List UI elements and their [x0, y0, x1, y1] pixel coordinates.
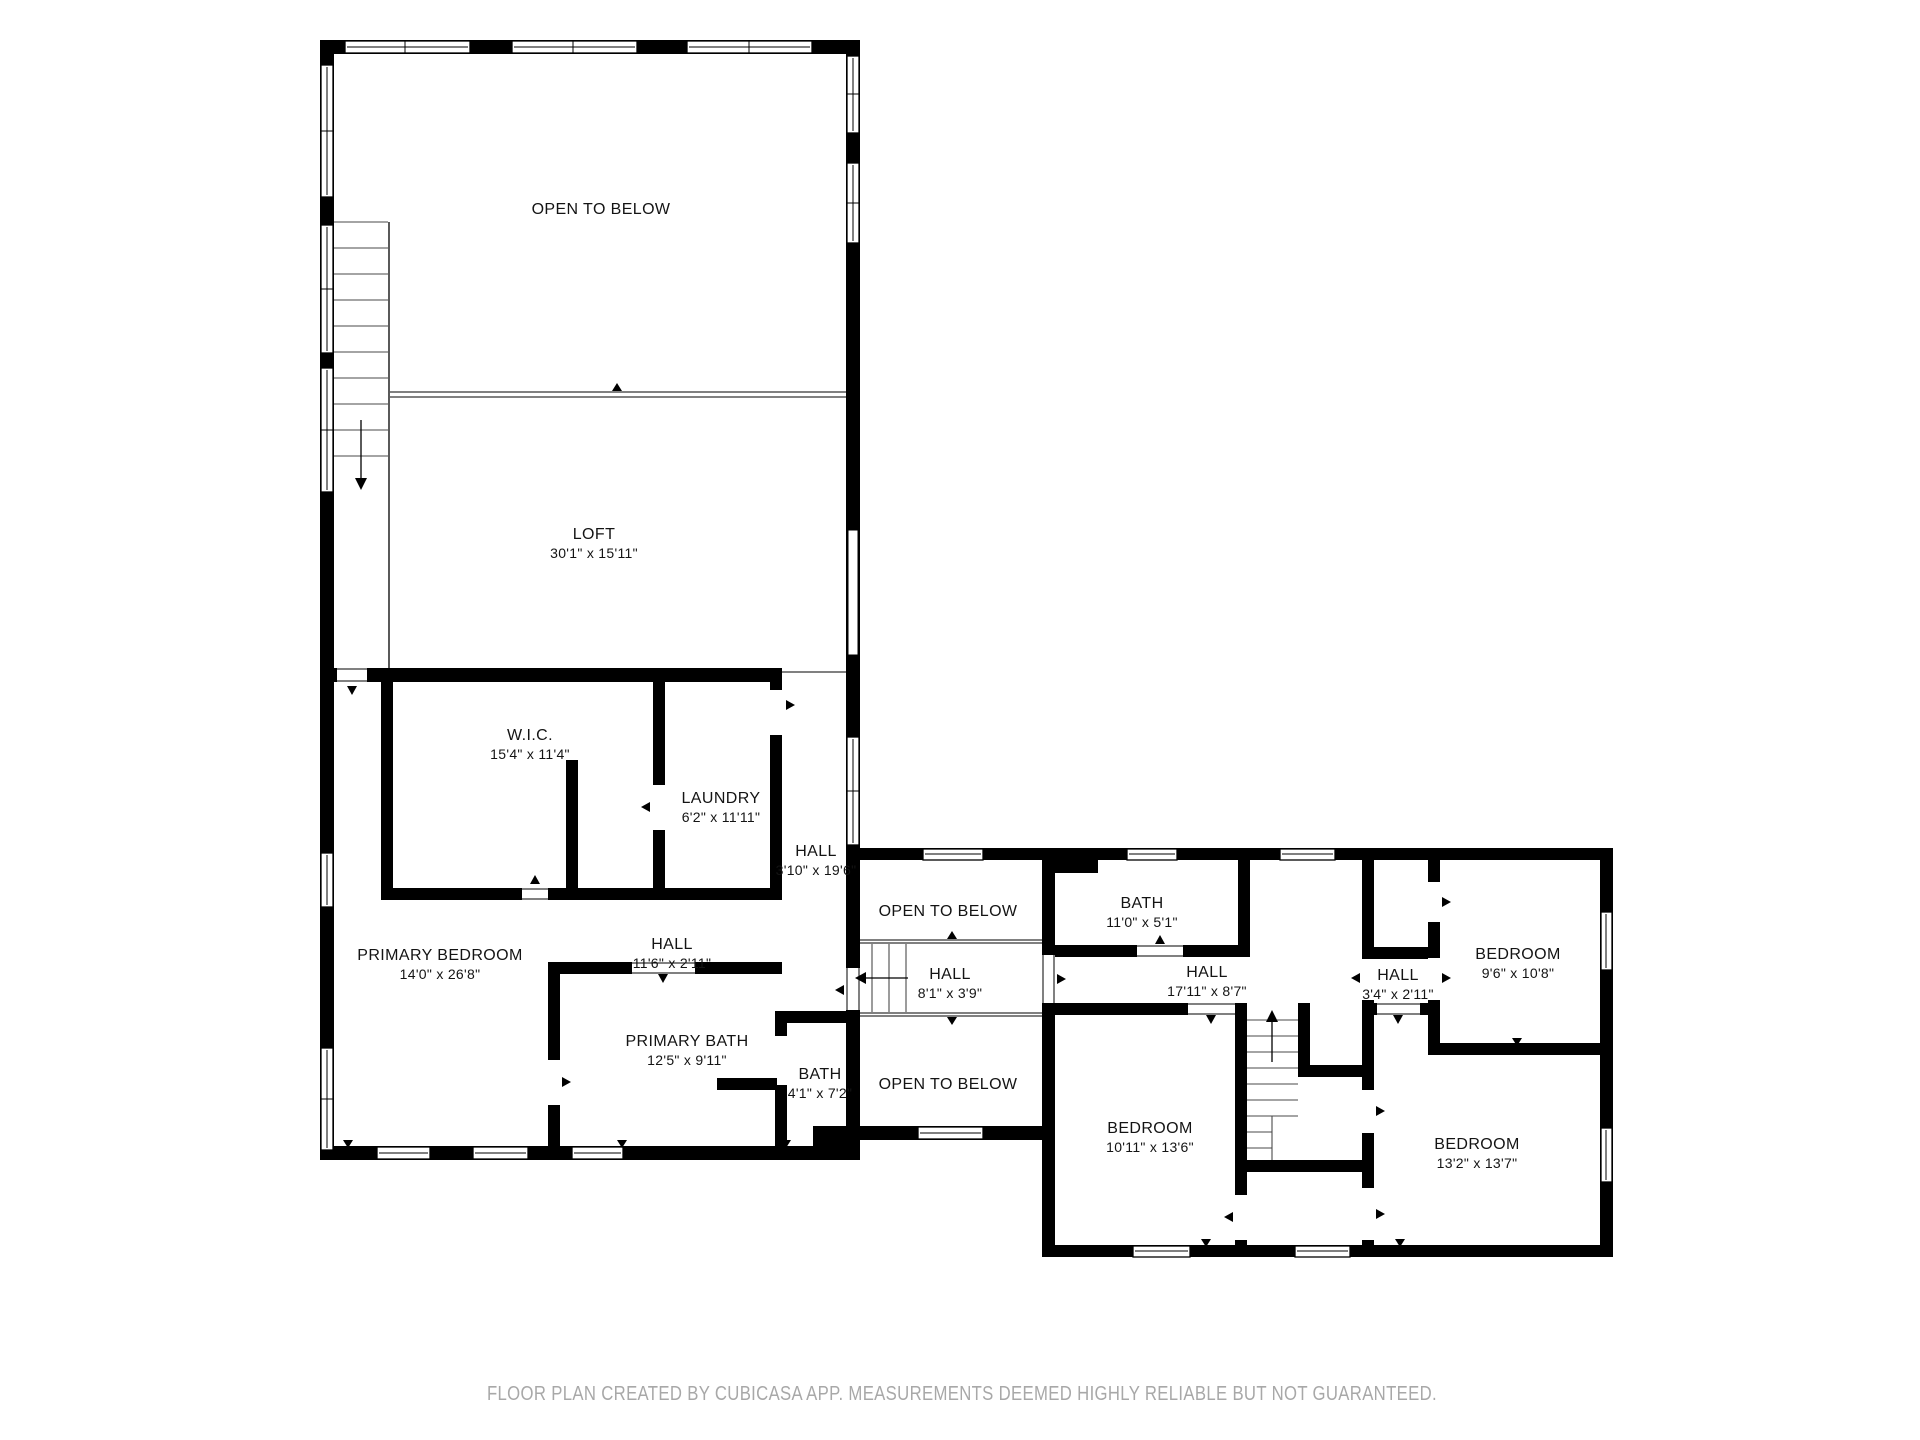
- room-label-hall-upper: HALL: [795, 843, 837, 860]
- room-label-hall-primary: HALL: [651, 936, 693, 953]
- room-dims-bedroom-ne: 9'6" x 10'8": [1482, 965, 1555, 981]
- door-gap: [1188, 1003, 1235, 1015]
- room-label-bedroom-ne: BEDROOM: [1475, 946, 1560, 963]
- room-dims-bath-small: 4'1" x 7'2": [788, 1085, 853, 1101]
- door-marker: [562, 1077, 571, 1087]
- door-gap: [1362, 1188, 1374, 1240]
- room-label-bath-small: BATH: [798, 1066, 841, 1083]
- wall-segment: [1055, 860, 1098, 873]
- door-marker: [1224, 1212, 1233, 1222]
- room-label-hall-small: HALL: [1377, 967, 1419, 984]
- room-label-laundry: LAUNDRY: [682, 790, 761, 807]
- wall-segment: [1042, 848, 1055, 1257]
- door-gap: [653, 785, 665, 830]
- room-dims-bedroom-se: 13'2" x 13'7": [1437, 1155, 1518, 1171]
- wall-segment: [717, 1078, 777, 1090]
- door-gap: [1137, 945, 1183, 957]
- windows: [321, 41, 1612, 1257]
- room-label-bedroom-sw: BEDROOM: [1107, 1120, 1192, 1137]
- railing-lines: [390, 392, 1042, 1016]
- room-dims-primary-bath: 12'5" x 9'11": [647, 1052, 727, 1068]
- door-swing-markers: [343, 383, 1522, 1247]
- room-label-primary-bedroom: PRIMARY BEDROOM: [357, 947, 522, 964]
- room-dims-wic: 15'4" x 11'4": [490, 746, 570, 762]
- room-dims-primary-bedroom: 14'0" x 26'8": [400, 966, 481, 982]
- stair-direction-arrow: [1266, 1010, 1278, 1022]
- room-label-bedroom-se: BEDROOM: [1434, 1136, 1519, 1153]
- walls: [320, 40, 1613, 1257]
- wall-segment: [1362, 1015, 1374, 1160]
- room-label-primary-bath: PRIMARY BATH: [625, 1033, 748, 1050]
- room-label-open-to-below-mid-bottom: OPEN TO BELOW: [879, 1076, 1018, 1093]
- room-dims-hall-upper: 3'10" x 19'6": [776, 862, 857, 878]
- wall-segment: [1428, 1043, 1613, 1055]
- door-marker: [1155, 935, 1165, 944]
- door-gap: [1235, 1195, 1247, 1240]
- door-marker: [530, 875, 540, 884]
- door-gap: [337, 668, 367, 682]
- wall-segment: [566, 760, 578, 900]
- staircase-main: [334, 222, 389, 668]
- room-label-bath-main: BATH: [1120, 895, 1163, 912]
- wall-segment: [1235, 1160, 1374, 1172]
- door-marker: [835, 985, 844, 995]
- wall-segment: [320, 40, 334, 1160]
- floor-plan-canvas: OPEN TO BELOW LOFT 30'1" x 15'11" W.I.C.…: [0, 0, 1920, 1440]
- wall-segment: [653, 668, 665, 900]
- floor-plan-page: OPEN TO BELOW LOFT 30'1" x 15'11" W.I.C.…: [0, 0, 1920, 1440]
- wall-tick: [947, 931, 957, 939]
- wall-segment: [775, 1011, 787, 1036]
- door-marker: [1376, 1209, 1385, 1219]
- wall-tick: [947, 1017, 957, 1025]
- door-marker: [347, 686, 357, 695]
- window: [848, 530, 858, 655]
- footer-disclaimer: FLOOR PLAN CREATED BY CUBICASA APP. MEAS…: [487, 1383, 1437, 1405]
- door-gap: [1428, 882, 1440, 922]
- door-gap: [1377, 1003, 1420, 1015]
- wall-segment: [1362, 860, 1374, 947]
- door-marker: [1206, 1015, 1216, 1024]
- wall-tick: [612, 383, 622, 391]
- room-label-open-to-below-mid-top: OPEN TO BELOW: [879, 903, 1018, 920]
- room-dims-hall-main: 17'11" x 8'7": [1167, 983, 1247, 999]
- door-marker: [786, 700, 795, 710]
- door-gap: [1362, 1090, 1374, 1133]
- door-marker: [641, 802, 650, 812]
- room-label-wic: W.I.C.: [507, 727, 553, 744]
- room-dims-hall-small: 3'4" x 2'11": [1362, 986, 1434, 1002]
- room-dims-bath-main: 11'0" x 5'1": [1106, 914, 1178, 930]
- door-gap: [1042, 955, 1055, 1003]
- door-marker: [658, 974, 668, 983]
- room-dims-hall-primary: 11'6" x 2'11": [633, 955, 712, 971]
- door-marker: [1393, 1015, 1403, 1024]
- room-label-hall-stairs: HALL: [929, 966, 971, 983]
- room-label-loft: LOFT: [573, 526, 616, 543]
- door-marker: [1442, 897, 1451, 907]
- room-labels: OPEN TO BELOW LOFT 30'1" x 15'11" W.I.C.…: [357, 201, 1560, 1171]
- wall-segment: [393, 888, 782, 900]
- staircase-right: [1247, 1010, 1298, 1160]
- door-gap: [548, 1060, 560, 1105]
- room-label-hall-main: HALL: [1186, 964, 1228, 981]
- room-dims-loft: 30'1" x 15'11": [550, 545, 638, 561]
- stair-direction-arrow: [355, 478, 367, 490]
- room-dims-laundry: 6'2" x 11'11": [682, 809, 761, 825]
- wall-segment: [381, 668, 393, 900]
- staircase-hall: [855, 944, 908, 1012]
- door-marker: [1351, 973, 1360, 983]
- door-marker: [1376, 1106, 1385, 1116]
- door-gap: [770, 690, 782, 735]
- wall-segment: [775, 1011, 860, 1023]
- wall-segment: [1238, 860, 1250, 957]
- room-label-open-to-below-top: OPEN TO BELOW: [532, 201, 671, 218]
- door-marker: [1057, 974, 1066, 984]
- room-dims-hall-stairs: 8'1" x 3'9": [918, 985, 983, 1001]
- door-gap: [522, 888, 548, 900]
- room-dims-bedroom-sw: 10'11" x 13'6": [1106, 1139, 1194, 1155]
- door-marker: [1442, 973, 1451, 983]
- wall-segment: [775, 1085, 787, 1160]
- door-gap: [846, 968, 860, 1010]
